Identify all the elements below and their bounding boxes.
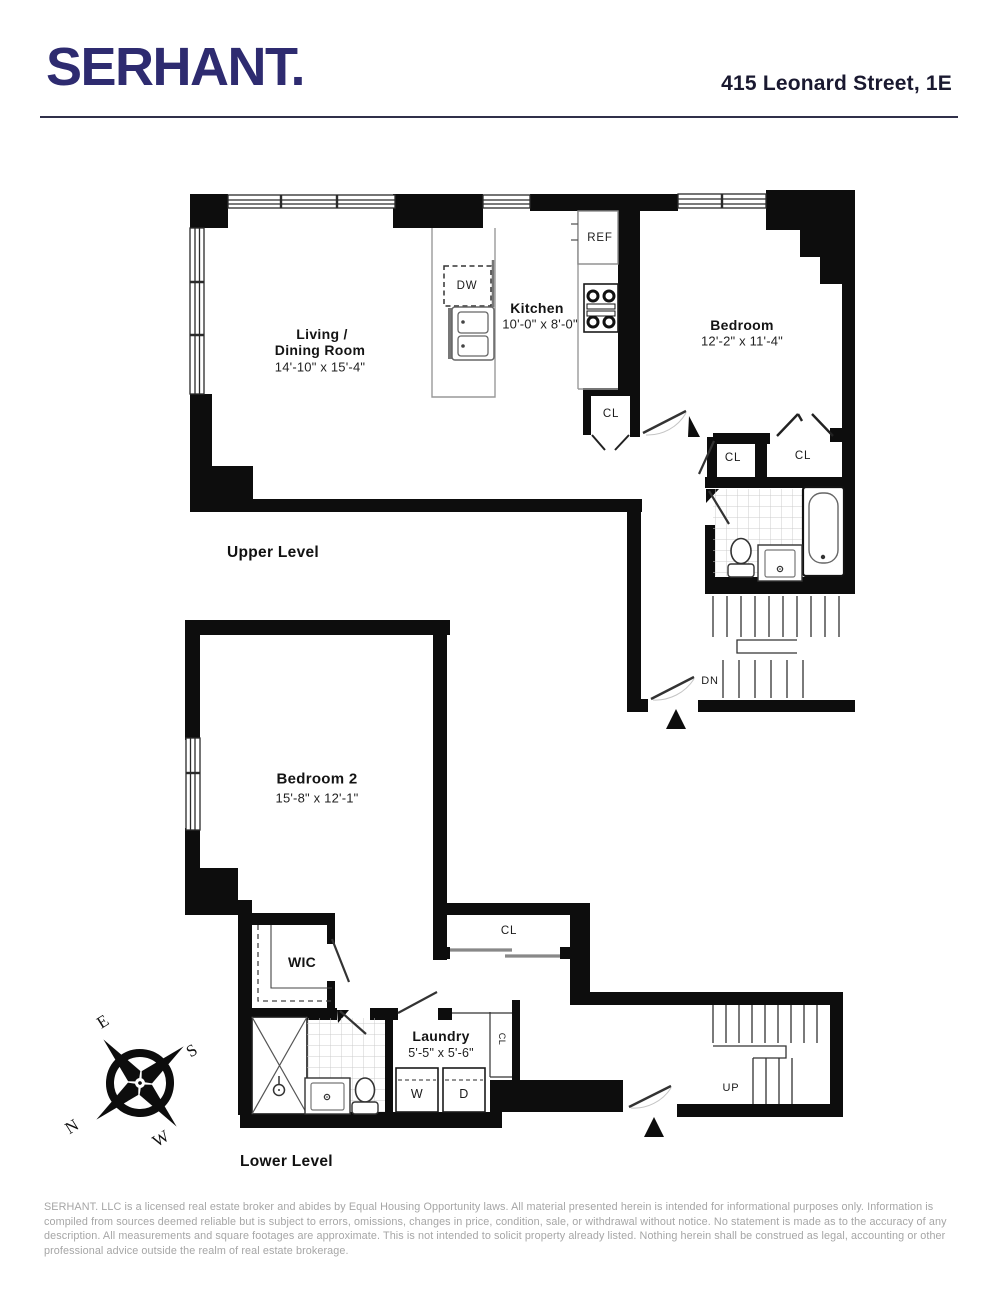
dryer-label: D	[459, 1087, 469, 1101]
bedroom-dims: 12'-2" x 11'-4"	[701, 334, 783, 349]
bedroom2-label: Bedroom 2	[276, 771, 357, 788]
laundry-door	[398, 992, 437, 1013]
dishwasher-label: DW	[457, 280, 478, 292]
hall-closet-label: CL	[501, 925, 517, 937]
floor-plan-drawing	[0, 0, 1000, 1293]
wic-door	[332, 939, 349, 982]
closet-sliding-doors	[450, 950, 560, 956]
entry-arrow-lower	[644, 1117, 664, 1137]
upper-level-title: Upper Level	[227, 544, 319, 562]
toilet-icon	[731, 539, 751, 564]
kitchen-dims: 10'-0" x 8'-0"	[502, 317, 578, 332]
floorplan-page: SERHANT. 415 Leonard Street, 1E	[0, 0, 1000, 1293]
lower-entry-door	[629, 1086, 671, 1107]
bedroom-label: Bedroom	[710, 317, 774, 333]
kitchen-closet-label: CL	[603, 408, 619, 420]
laundry-appliances	[396, 1068, 485, 1112]
living-room-dims: 14'-10" x 15'-4"	[275, 360, 365, 375]
narrow-closet-label: CL	[497, 1033, 507, 1046]
lower-level-title: Lower Level	[240, 1153, 333, 1171]
stairs-down-label: DN	[701, 675, 719, 687]
washer-label: W	[411, 1087, 423, 1101]
lower-level-window	[186, 738, 200, 830]
laundry-dims: 5'-5" x 5'-6"	[408, 1046, 474, 1060]
compass-rose-icon	[60, 1003, 221, 1164]
upper-bathroom	[709, 487, 844, 581]
wic-label: WIC	[288, 954, 316, 970]
kitchen-closet-bifold	[592, 435, 629, 450]
bedroom-closet-right-label: CL	[795, 450, 811, 462]
living-room-label-line2: Dining Room	[275, 342, 365, 358]
kitchen-sink-icon	[448, 307, 494, 360]
stairs-up-label: UP	[723, 1082, 740, 1094]
living-room-label-line1: Living /	[296, 326, 347, 342]
bedroom2-dims: 15'-8" x 12'-1"	[276, 791, 359, 806]
lower-bathroom	[252, 1017, 385, 1114]
laundry-label: Laundry	[412, 1028, 469, 1044]
entry-arrow-upper	[666, 709, 686, 729]
upper-stairs	[713, 596, 839, 698]
kitchen-label: Kitchen	[510, 300, 563, 316]
closet-double-doors	[777, 414, 833, 436]
bedroom-closet-left-label: CL	[725, 452, 741, 464]
legal-disclaimer: SERHANT. LLC is a licensed real estate b…	[44, 1200, 958, 1259]
upper-entry-door	[651, 677, 694, 699]
refrigerator-label: REF	[587, 232, 612, 244]
toilet-lower-icon	[356, 1078, 375, 1102]
stove-icon	[584, 284, 618, 332]
